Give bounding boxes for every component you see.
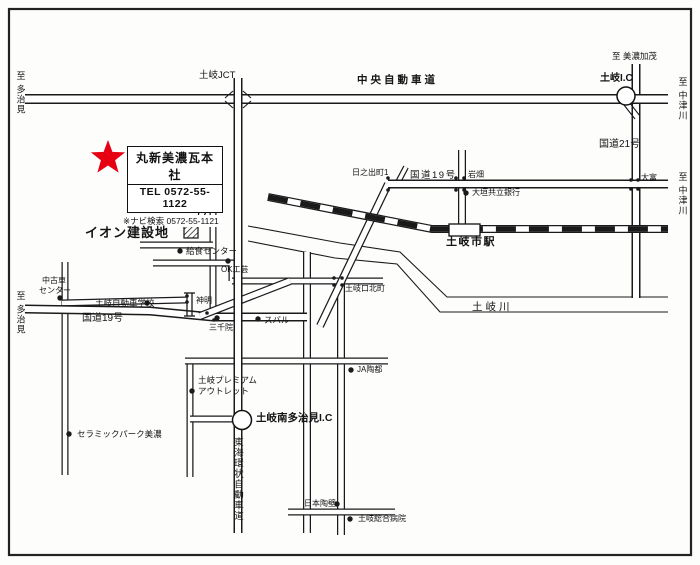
used-car-center-2-label: センター <box>39 287 71 295</box>
map-dot <box>225 258 230 263</box>
ceramic-park-mino-label: セラミックパーク美濃 <box>77 430 162 439</box>
aeon-site-label: イオン建設地 <box>85 226 169 240</box>
used-car-center-1-label: 中古車 <box>42 277 66 285</box>
route19-east-label: 国道19号 <box>410 171 457 181</box>
map-dot <box>462 176 466 180</box>
toki-premium-outlet-1-label: 土岐プレミアム <box>198 376 257 385</box>
to-nakatsugawa-r19-label: 至 中津川 <box>677 172 686 216</box>
access-map: 丸新美濃瓦本社 TEL 0572-55-1122 ※ナビ検索 0572-55-1… <box>0 0 700 565</box>
to-minokamo-label: 至 美濃加茂 <box>612 52 657 61</box>
map-dot <box>348 367 353 372</box>
toki-driving-school-label: 土岐自動車学校 <box>95 299 155 308</box>
kyushoku-center-label: 給食センター <box>186 247 237 256</box>
route21-label: 国道21号 <box>599 140 640 151</box>
map-linework <box>0 0 700 565</box>
map-dot <box>454 188 458 192</box>
nihon-toheki-label: 日本陶壁 <box>304 500 336 508</box>
toki-station-symbol <box>449 224 480 236</box>
map-dot <box>57 295 62 300</box>
map-dot <box>347 516 352 521</box>
company-tel: TEL 0572-55-1122 <box>128 185 222 212</box>
toki-river-label: 土岐川 <box>472 302 513 313</box>
map-dot <box>636 178 640 182</box>
toki-jct-label: 土岐JCT <box>199 71 235 81</box>
toki-minami-tajimi-ic-label: 土岐南多治見I.C <box>256 413 332 424</box>
map-dot <box>185 300 189 304</box>
ok-kogei-label: OK工芸 <box>221 266 249 274</box>
map-dot <box>340 283 344 287</box>
ja-toto-label: JA陶都 <box>357 366 382 374</box>
to-tajimi-top-label: 至 多治見 <box>15 71 24 115</box>
to-nakatsugawa-top-label: 至 中津川 <box>677 77 686 121</box>
ogaki-kyoritsu-bank-label: 大垣共立銀行 <box>472 189 520 197</box>
to-tajimi-left-label: 至 多治見 <box>15 291 24 335</box>
tokiguchi-kitamachi-label: 土岐口北町 <box>345 285 385 293</box>
sanzenin-label: 三千院 <box>209 324 233 332</box>
map-dot <box>332 276 336 280</box>
map-dot <box>189 388 194 393</box>
company-callout: 丸新美濃瓦本社 TEL 0572-55-1122 ※ナビ検索 0572-55-1… <box>127 146 223 227</box>
tokai-kanjo-expressway-label: 東海環状自動車道 <box>232 437 242 521</box>
map-dot <box>386 188 390 192</box>
map-dot <box>332 283 336 287</box>
star-marker <box>91 140 125 173</box>
map-dot <box>629 187 633 191</box>
map-dot <box>212 318 216 322</box>
shinmei-label: 神明 <box>196 297 212 305</box>
map-dot <box>66 431 71 436</box>
map-dot <box>205 311 209 315</box>
map-dot <box>185 294 189 298</box>
map-dot <box>462 188 466 192</box>
map-dot <box>340 276 344 280</box>
toki-general-hospital-label: 土岐総合病院 <box>358 515 406 523</box>
hinodecho-label: 日之出町1 <box>352 169 388 177</box>
company-name: 丸新美濃瓦本社 <box>128 147 222 185</box>
route19-west-label: 国道19号 <box>82 314 123 325</box>
landmark-dots <box>57 190 468 521</box>
map-dot <box>177 248 182 253</box>
map-dot <box>629 178 633 182</box>
company-callout-box: 丸新美濃瓦本社 TEL 0572-55-1122 <box>127 146 223 213</box>
map-dot <box>255 316 260 321</box>
toki-ic-label: 土岐I.C <box>600 74 633 85</box>
junction-dots <box>185 176 640 322</box>
toki-premium-outlet-2-label: アウトレット <box>198 387 249 396</box>
toki-ic-circle <box>617 87 635 105</box>
toki-minami-tajimi-ic-circle <box>233 411 252 430</box>
toki-city-station-label: 土岐市駅 <box>446 237 496 249</box>
otomi-label: 大富 <box>641 174 657 182</box>
subaru-label: スバル <box>264 316 290 325</box>
chuo-expressway-label: 中央自動車道 <box>357 75 438 86</box>
map-dot <box>636 187 640 191</box>
iwahata-label: 岩畑 <box>468 171 484 179</box>
